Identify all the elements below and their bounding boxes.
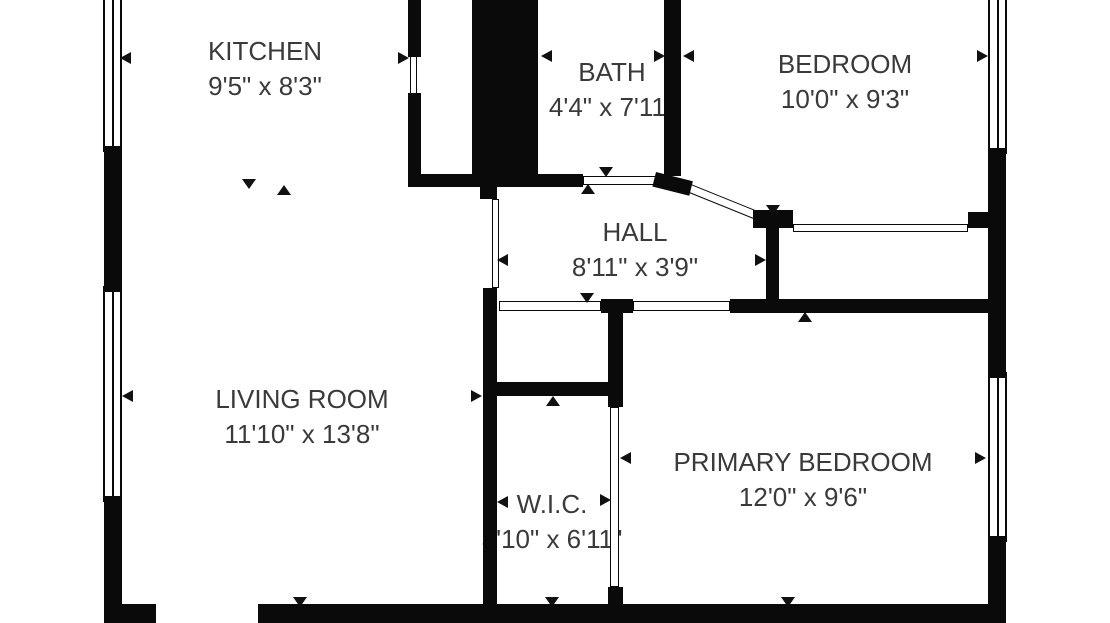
dimension-arrow-left-icon xyxy=(120,52,131,64)
dimension-arrow-right-icon xyxy=(975,452,986,464)
room-name: KITCHEN xyxy=(208,34,322,69)
room-dimensions: 4'4" x 7'11" xyxy=(549,90,675,125)
door-opening xyxy=(583,176,664,185)
wall-segment xyxy=(608,313,623,407)
dimension-arrow-down-icon xyxy=(599,167,613,177)
wall-segment xyxy=(104,604,156,623)
room-label-living-room: LIVING ROOM 11'10" x 13'8" xyxy=(215,382,388,452)
room-dimensions: 10'0" x 9'3" xyxy=(778,82,912,117)
room-name: BEDROOM xyxy=(778,47,912,82)
door-leaf xyxy=(683,182,758,219)
room-label-bedroom: BEDROOM 10'0" x 9'3" xyxy=(778,47,912,117)
wall-segment xyxy=(258,604,988,623)
wall-segment xyxy=(408,0,421,57)
dimension-arrow-down-icon xyxy=(242,179,256,189)
dimension-arrow-right-icon xyxy=(471,390,482,402)
window-sill xyxy=(103,148,122,152)
dimension-arrow-right-icon xyxy=(654,50,665,62)
wall-segment xyxy=(408,93,421,174)
dimension-arrow-down-icon xyxy=(293,597,307,607)
wall-segment xyxy=(730,299,1006,313)
room-label-primary-bedroom: PRIMARY BEDROOM 12'0" x 9'6" xyxy=(673,445,932,515)
wall-segment xyxy=(968,212,1006,228)
closet-door-track xyxy=(793,224,968,232)
dimension-arrow-down-icon xyxy=(766,205,780,215)
window-sill xyxy=(988,150,1007,154)
room-name: LIVING ROOM xyxy=(215,382,388,417)
window xyxy=(103,0,122,148)
dimension-arrow-up-icon xyxy=(798,312,812,322)
window xyxy=(988,376,1007,538)
cased-opening xyxy=(492,199,499,288)
room-dimensions: 8'11" x 3'9" xyxy=(572,250,698,285)
wall-segment xyxy=(988,154,1006,372)
wall-segment xyxy=(988,542,1006,623)
window-sill xyxy=(988,372,1007,376)
window xyxy=(103,290,122,498)
wall-segment xyxy=(483,288,497,623)
dimension-arrow-left-icon xyxy=(497,496,508,508)
window xyxy=(988,0,1007,150)
dimension-arrow-left-icon xyxy=(497,254,508,266)
dimension-arrow-left-icon xyxy=(122,390,133,402)
wall-block xyxy=(472,0,538,187)
room-dimensions: 9'5" x 8'3" xyxy=(208,69,322,104)
dimension-arrow-up-icon xyxy=(546,396,560,406)
window-sill xyxy=(988,538,1007,542)
room-label-bath: BATH 4'4" x 7'11" xyxy=(549,55,675,125)
wall-segment xyxy=(652,172,693,196)
room-dimensions: 11'10" x 13'8" xyxy=(215,417,388,452)
dimension-arrow-down-icon xyxy=(545,597,559,607)
dimension-arrow-down-icon xyxy=(580,293,594,303)
dimension-arrow-right-icon xyxy=(600,494,611,506)
room-name: PRIMARY BEDROOM xyxy=(673,445,932,480)
wall-segment xyxy=(492,382,615,396)
dimension-arrow-left-icon xyxy=(683,50,694,62)
room-label-kitchen: KITCHEN 9'5" x 8'3" xyxy=(208,34,322,104)
room-dimensions: 3'10" x 6'11" xyxy=(482,522,623,557)
wall-segment xyxy=(104,152,122,286)
wall-segment xyxy=(664,0,681,176)
dimension-arrow-left-icon xyxy=(620,452,631,464)
dimension-arrow-right-icon xyxy=(755,254,766,266)
wall-segment xyxy=(608,587,623,617)
door-opening xyxy=(610,407,619,587)
dimension-arrow-right-icon xyxy=(398,52,409,64)
room-dimensions: 12'0" x 9'6" xyxy=(673,480,932,515)
dimension-arrow-right-icon xyxy=(977,50,988,62)
dimension-arrow-up-icon xyxy=(277,185,291,195)
door-opening xyxy=(410,55,417,95)
floor-plan: KITCHEN 9'5" x 8'3" BATH 4'4" x 7'11" BE… xyxy=(0,0,1110,623)
window-sill xyxy=(103,498,122,502)
window-sill xyxy=(103,286,122,290)
room-name: HALL xyxy=(572,215,698,250)
wall-segment xyxy=(601,299,633,313)
door-opening xyxy=(633,301,730,311)
wall-segment xyxy=(480,187,497,199)
wall-segment xyxy=(766,210,779,302)
dimension-arrow-up-icon xyxy=(581,184,595,194)
dimension-arrow-left-icon xyxy=(541,50,552,62)
room-label-hall: HALL 8'11" x 3'9" xyxy=(572,215,698,285)
dimension-arrow-down-icon xyxy=(781,597,795,607)
